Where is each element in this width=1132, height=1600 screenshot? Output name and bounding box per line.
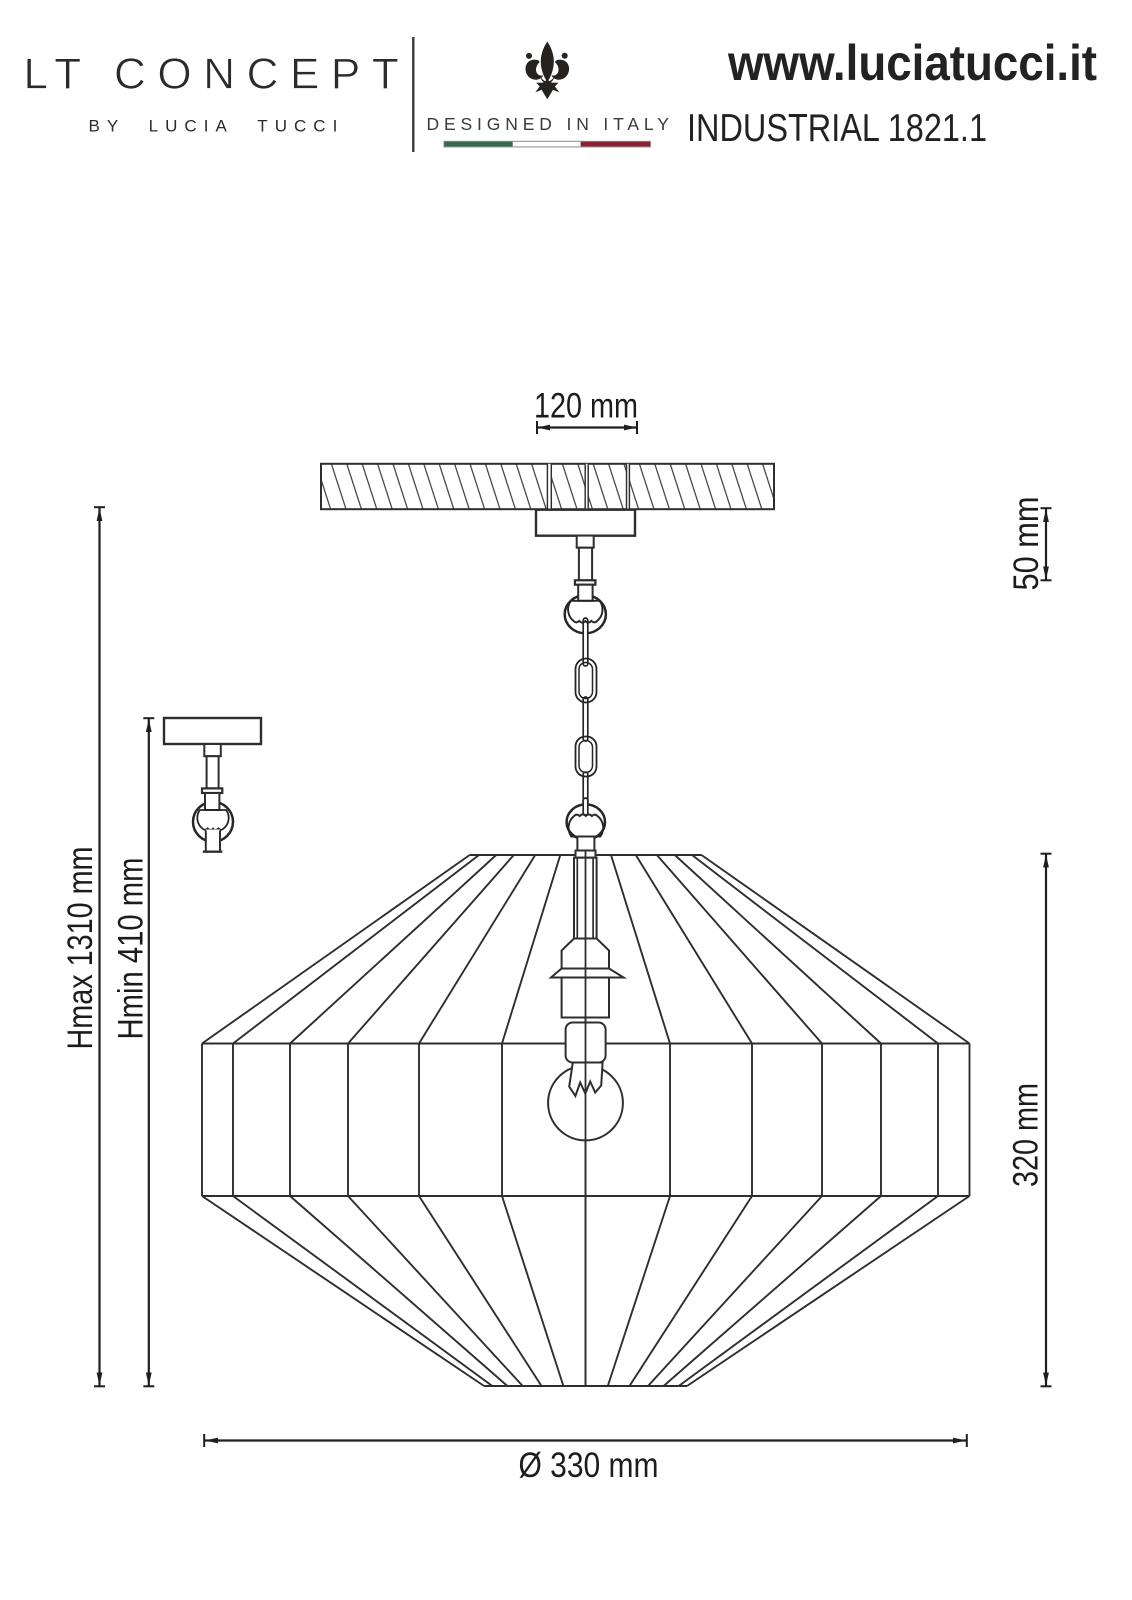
svg-text:DESIGNED IN ITALY: DESIGNED IN ITALY [427,114,674,134]
svg-text:BY LUCIA TUCCI: BY LUCIA TUCCI [89,117,345,136]
svg-text:50 mm: 50 mm [1007,497,1046,591]
svg-text:Hmin 410 mm: Hmin 410 mm [112,858,151,1040]
svg-text:320 mm: 320 mm [1007,1083,1046,1187]
svg-text:CONCEPT: CONCEPT [114,50,410,99]
svg-text:LT: LT [24,50,91,99]
svg-text:120 mm: 120 mm [534,387,638,426]
svg-text:INDUSTRIAL 1821.1: INDUSTRIAL 1821.1 [687,107,987,150]
svg-text:Ø 330 mm: Ø 330 mm [519,1446,659,1485]
svg-text:www.luciatucci.it: www.luciatucci.it [727,34,1097,91]
svg-text:Hmax 1310 mm: Hmax 1310 mm [61,847,100,1050]
